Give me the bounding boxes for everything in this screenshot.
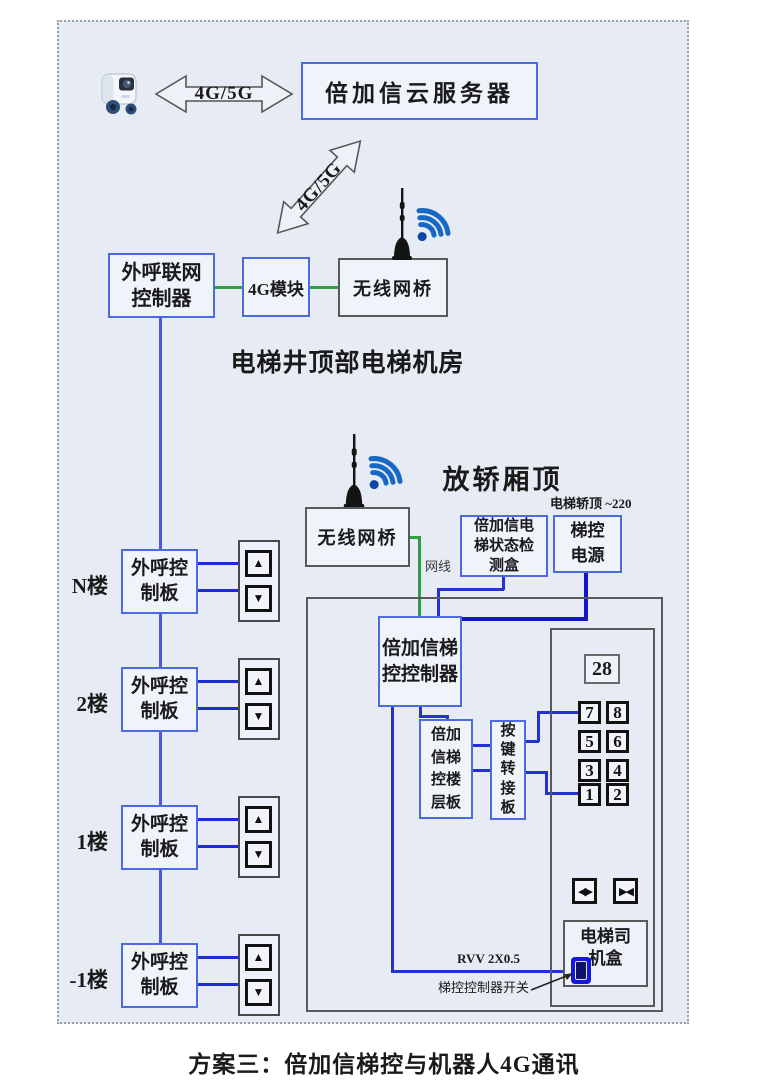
annotation-arrow-icon xyxy=(528,964,576,994)
floor-button-6: 6 xyxy=(606,730,629,753)
up-button: ▲ xyxy=(245,668,272,695)
status-detector-box: 倍加信电 梯状态检 测盒 xyxy=(460,515,548,577)
cable-label: 网线 xyxy=(425,556,457,575)
up-button: ▲ xyxy=(245,806,272,833)
bridge-box-car-top: 无线网桥 xyxy=(305,507,410,567)
riser-wire xyxy=(159,732,162,805)
riser-wire xyxy=(159,318,162,549)
green-wire xyxy=(310,286,338,289)
floor-label: -1楼 xyxy=(52,964,108,994)
floor-button-8: 8 xyxy=(606,701,629,724)
car-top-label: 放轿厢顶 xyxy=(435,458,570,497)
down-button: ▼ xyxy=(245,585,272,612)
call-wire xyxy=(198,707,238,710)
robot-icon xyxy=(94,64,150,120)
floor-button-4: 4 xyxy=(606,759,629,782)
floor-button-2: 2 xyxy=(606,783,629,806)
switch-label: 梯控控制器开关 xyxy=(438,977,538,996)
caption: 方案三：倍加信梯控与机器人4G通讯 xyxy=(0,1045,768,1079)
floor-board-box: 倍加 信梯 控楼 层板 xyxy=(419,719,473,819)
blue-wire xyxy=(437,588,504,591)
blue-wire xyxy=(526,771,547,774)
down-button: ▼ xyxy=(245,979,272,1006)
call-wire xyxy=(198,845,238,848)
down-button: ▼ xyxy=(245,703,272,730)
diagram-page: 4G/5G 倍加信云服务器 4G/5G 外呼联网 控制器 4G模块 无线网桥 电… xyxy=(0,0,768,1090)
car-top-power-note: 电梯轿顶 ~220 xyxy=(550,493,650,512)
call-wire xyxy=(198,680,238,683)
floor-button-7: 7 xyxy=(578,701,601,724)
controller-box: 倍加信梯 控控制器 xyxy=(378,616,462,707)
blue-wire xyxy=(419,715,449,718)
floor-label: 2楼 xyxy=(58,688,108,718)
call-wire xyxy=(198,983,238,986)
floor-display: 28 xyxy=(584,654,620,684)
call-wire xyxy=(198,562,238,565)
call-wire xyxy=(198,818,238,821)
up-button: ▲ xyxy=(245,550,272,577)
robot-cloud-link-arrow: 4G/5G xyxy=(152,72,296,116)
riser-wire xyxy=(159,614,162,667)
callboard-box: 外呼控 制板 xyxy=(121,943,198,1008)
green-wire xyxy=(215,286,242,289)
blue-wire xyxy=(473,744,490,747)
key-adapter-box: 按 键 转 接 板 xyxy=(490,720,526,820)
blue-wire xyxy=(391,707,394,972)
callboard-box: 外呼控 制板 xyxy=(121,549,198,614)
bridge-box-machine-room: 无线网桥 xyxy=(338,258,448,317)
call-gateway-box: 外呼联网 控制器 xyxy=(108,253,215,318)
power-supply-box: 梯控 电源 xyxy=(553,515,622,573)
call-wire xyxy=(198,956,238,959)
callboard-box: 外呼控 制板 xyxy=(121,805,198,870)
cloud-server-label: 倍加信云服务器 xyxy=(325,74,514,108)
door-open-button: ◀▶ xyxy=(572,878,597,904)
link-label: 4G/5G xyxy=(152,72,296,116)
controller-switch-inner xyxy=(575,961,587,980)
blue-wire xyxy=(545,771,548,794)
riser-wire xyxy=(159,870,162,943)
rvv-wire-label: RVV 2X0.5 xyxy=(440,951,520,967)
floor-button-5: 5 xyxy=(578,730,601,753)
floor-button-3: 3 xyxy=(578,759,601,782)
blue-wire xyxy=(473,769,490,772)
down-button: ▼ xyxy=(245,841,272,868)
callboard-box: 外呼控 制板 xyxy=(121,667,198,732)
module-4g-box: 4G模块 xyxy=(242,257,310,317)
floor-label: N楼 xyxy=(58,570,108,600)
door-close-button: ▶◀ xyxy=(613,878,638,904)
up-button: ▲ xyxy=(245,944,272,971)
floor-label: 1楼 xyxy=(58,826,108,856)
blue-wire xyxy=(537,711,540,742)
cloud-server-box: 倍加信云服务器 xyxy=(301,62,538,120)
machine-room-label: 电梯井顶部电梯机房 xyxy=(230,343,465,379)
floor-button-1: 1 xyxy=(578,783,601,806)
call-wire xyxy=(198,589,238,592)
